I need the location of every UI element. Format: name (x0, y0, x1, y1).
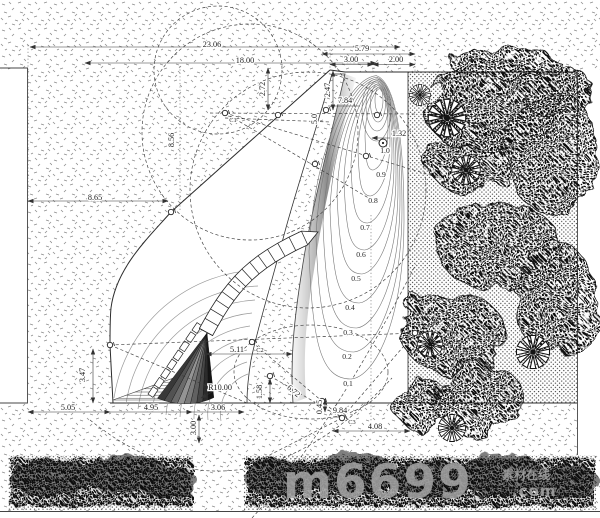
dimension-label: 3.06 (211, 403, 225, 412)
survey-point (323, 107, 328, 112)
dimension-label: 3.47 (78, 368, 87, 382)
dimension-label: 3.00 (189, 421, 198, 435)
dimension-label: 18.00 (236, 56, 254, 65)
survey-point (412, 330, 417, 335)
dimension-label: 5.0 (310, 114, 319, 124)
survey-point (222, 110, 227, 115)
contour-label: 0.9 (376, 170, 386, 179)
dimension-label: 5.79 (355, 44, 369, 53)
contour-label: 0.8 (368, 196, 378, 205)
survey-point (363, 153, 368, 158)
survey-point (339, 415, 344, 420)
point-label: C1 (229, 117, 236, 124)
dimension-label: 1.58 (255, 385, 264, 399)
dimension-label: R10.00 (208, 383, 232, 392)
dimension-label: 0.45 (315, 400, 324, 414)
dimension-label: 8.65 (88, 193, 102, 202)
dimension-label: 8.56 (167, 133, 176, 147)
dimension-label: 3.00 (344, 55, 358, 64)
contour-label: 0.2 (342, 352, 352, 361)
survey-point (374, 112, 379, 117)
dimension-label: 4.08 (368, 422, 382, 431)
contour-label: 0.4 (345, 303, 355, 312)
contour-label: 0.7 (360, 223, 370, 232)
watermark-com: .com (512, 482, 557, 500)
dimension-label: 5.05 (61, 403, 75, 412)
survey-point (312, 161, 317, 166)
contour-label: 0.5 (351, 274, 361, 283)
watermark-cn: 素材在线 (502, 467, 550, 482)
point-label: C2 (256, 347, 263, 354)
spot-elevation-label: 1.0 (380, 146, 390, 155)
dimension-label: 9.84 (333, 406, 347, 415)
dimension-label: 2.00 (389, 55, 403, 64)
site-plan-canvas: 23.0618.005.793.002.002.722.477.845.01.3… (0, 0, 600, 518)
dimension-label: 7.84 (338, 96, 352, 105)
watermark-brand: m6699 (283, 455, 473, 510)
contour-label: 0.1 (343, 379, 353, 388)
survey-point (267, 373, 272, 378)
contour-label: 0.3 (343, 328, 353, 337)
point-label: C3 (348, 419, 355, 426)
site-plan-drawing: 23.0618.005.793.002.002.722.477.845.01.3… (0, 0, 600, 518)
survey-point (107, 342, 112, 347)
survey-point (249, 339, 254, 344)
dimension-label: 2.47 (323, 83, 332, 97)
survey-point (275, 112, 280, 117)
contour-label: 0.6 (356, 250, 366, 259)
dimension-label: 2.72 (258, 82, 267, 96)
survey-point (168, 209, 173, 214)
spot-elevation-marker (379, 139, 387, 147)
dimension-label: 23.06 (203, 40, 221, 49)
dimension-label: 4.95 (144, 403, 158, 412)
dimension-label: 1.32 (392, 129, 406, 138)
dimension-label: 5.11 (230, 345, 244, 354)
